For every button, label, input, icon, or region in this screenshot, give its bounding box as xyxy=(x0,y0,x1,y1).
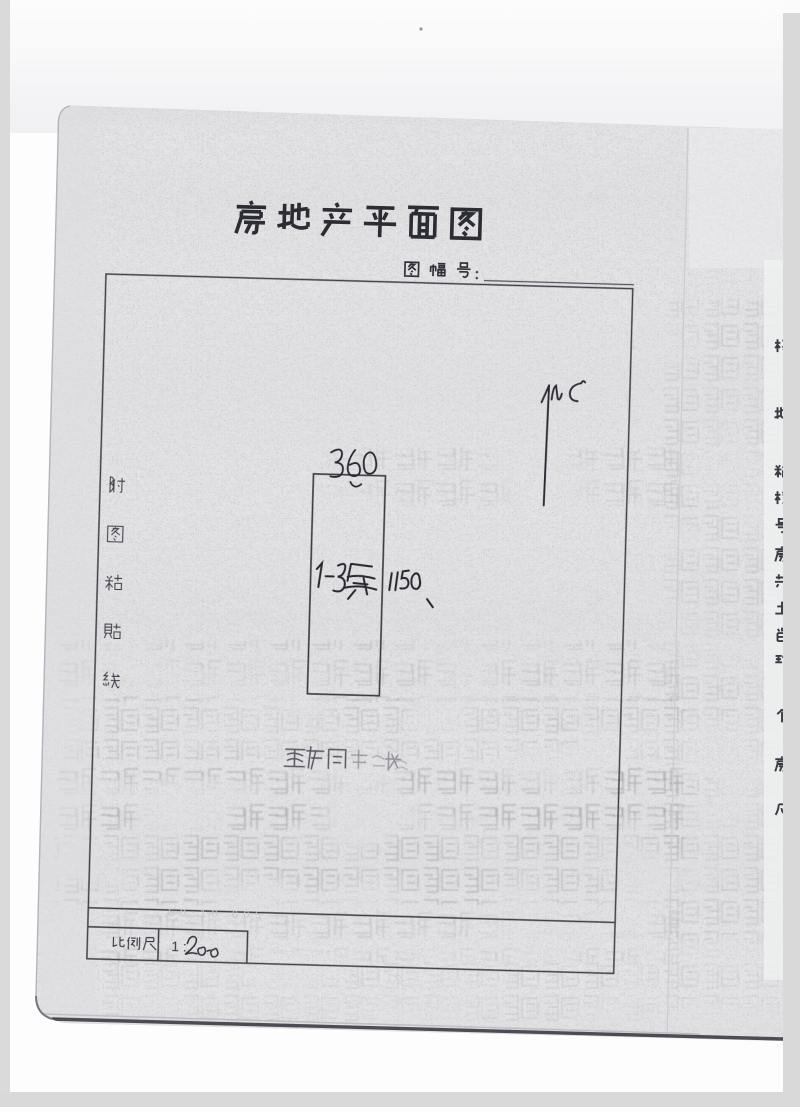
svg-text:1 :: 1 : xyxy=(171,938,187,954)
